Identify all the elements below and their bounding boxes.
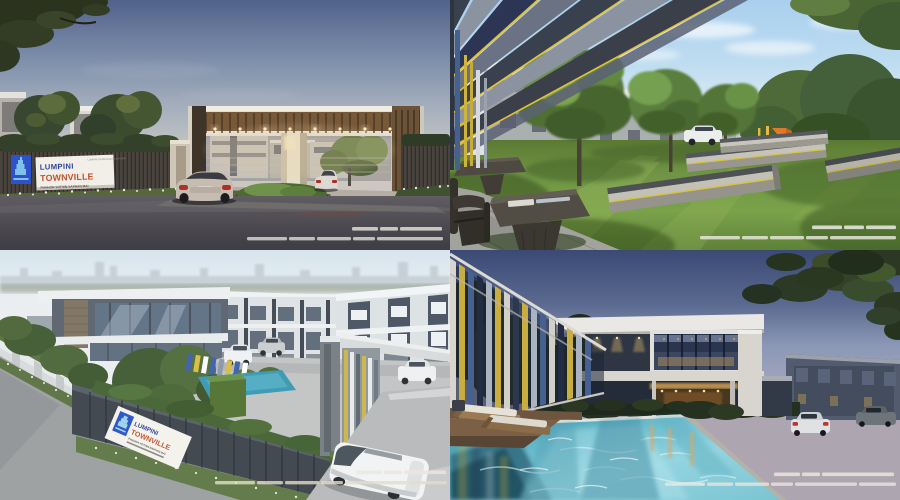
svg-text:TOWNVILLE: TOWNVILLE	[40, 171, 94, 183]
svg-text:LUMPINI: LUMPINI	[40, 162, 74, 172]
